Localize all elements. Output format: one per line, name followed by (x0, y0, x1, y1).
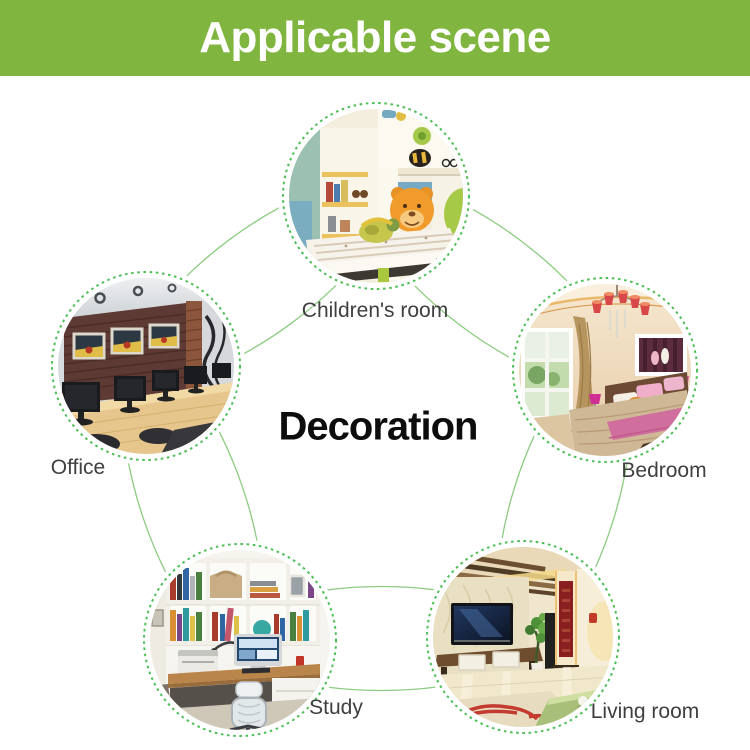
label-bedroom: Bedroom (621, 459, 706, 483)
label-study: Study (309, 696, 363, 720)
scene-diagram (0, 0, 750, 750)
applicable-scene-infographic: Applicable scene (0, 0, 750, 750)
study-photo (150, 550, 330, 730)
label-office: Office (51, 456, 105, 480)
label-living-room: Living room (591, 700, 700, 724)
center-title: Decoration (279, 405, 478, 450)
label-children-room: Children's room (302, 299, 448, 323)
